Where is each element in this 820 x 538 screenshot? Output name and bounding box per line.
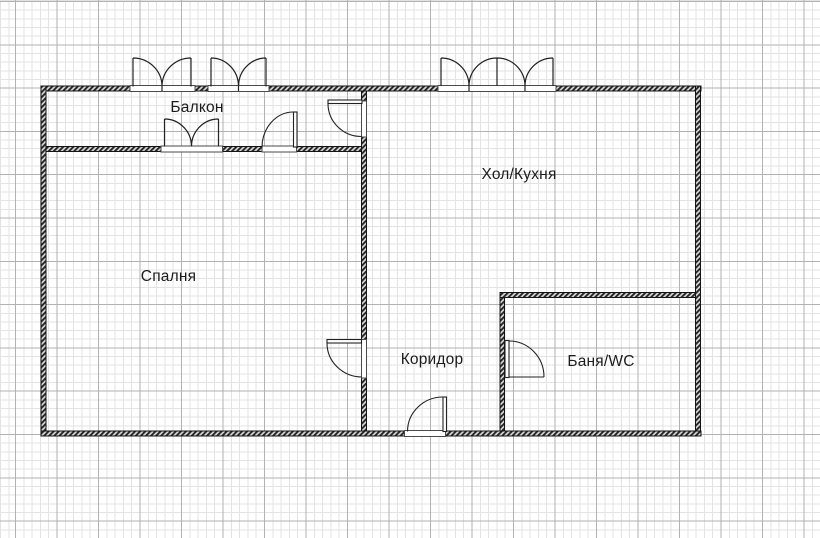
sill-balcony-inner-window <box>161 146 223 152</box>
walls-group <box>41 86 701 436</box>
room-label-bedroom: Спалня <box>141 268 196 286</box>
openings-group <box>130 86 556 437</box>
balcony-to-bedroom-door-icon <box>262 112 297 148</box>
bathroom-door-icon <box>505 341 544 378</box>
room-label-balcony: Балкон <box>170 99 223 117</box>
wall-bedroom-partition <box>362 91 367 431</box>
floorplan-page: Балкон Хол/Кухня Спалня Коридор Баня/WC <box>0 0 820 538</box>
opening-balcony-bedroom-door <box>262 146 297 152</box>
entry-door-icon <box>408 397 447 432</box>
opening-balcony-hall-door <box>362 101 367 137</box>
wall-exterior-right <box>696 86 701 436</box>
opening-bedroom-door <box>362 340 367 379</box>
wall-exterior-left <box>41 86 46 436</box>
wall-bathroom-left <box>500 298 505 432</box>
balcony-bedroom-window-icon <box>165 119 219 147</box>
balcony-to-hall-door-icon <box>328 100 362 137</box>
sill-hall-window <box>438 86 556 92</box>
room-label-hall-kitchen: Хол/Кухня <box>481 166 556 184</box>
wall-exterior-bottom <box>41 431 701 436</box>
floorplan-canvas <box>0 0 820 538</box>
threshold-entry-door <box>405 431 446 437</box>
room-label-corridor: Коридор <box>401 351 464 369</box>
wall-bathroom-top <box>500 293 696 298</box>
bedroom-door-icon <box>327 340 362 378</box>
room-label-bathroom: Баня/WC <box>567 353 634 371</box>
